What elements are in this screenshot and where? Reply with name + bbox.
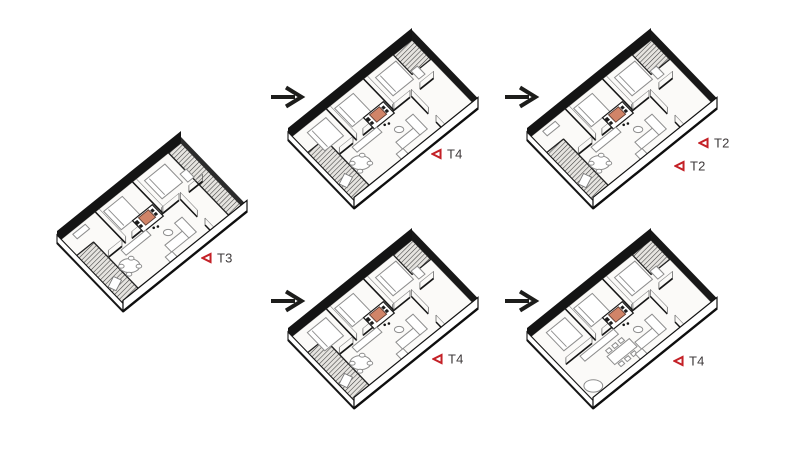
diagram-canvas: T3 T4 T2 T2 T4 T4 [0, 0, 800, 450]
type-label-text: T4 [448, 352, 464, 367]
transform-arrow-icon [503, 288, 541, 314]
type-marker-icon [673, 356, 684, 367]
transform-arrow-icon [269, 84, 307, 110]
type-marker-icon [674, 161, 685, 172]
floorplan-t4-plan-2 [288, 28, 478, 208]
type-marker-icon [698, 138, 709, 149]
floorplans-layer [0, 0, 800, 450]
type-label-text: T4 [689, 354, 705, 369]
floorplan-t4-plan-5 [527, 228, 717, 408]
transform-arrow-icon [269, 288, 307, 314]
type-marker-icon [432, 354, 443, 365]
type-marker-icon [431, 149, 442, 160]
type-label: T4 [431, 147, 463, 162]
type-label-text: T2 [714, 136, 730, 151]
type-label: T2 [698, 136, 730, 151]
type-marker-icon [201, 253, 212, 264]
floorplan-t4-plan-4 [288, 228, 478, 408]
floorplan-t3-plan-1 [57, 131, 247, 311]
type-label: T3 [201, 251, 233, 266]
type-label: T4 [432, 352, 464, 367]
type-label: T2 [674, 159, 706, 174]
type-label-text: T3 [217, 251, 233, 266]
type-label: T4 [673, 354, 705, 369]
floorplan-t2-plan-3 [527, 28, 717, 208]
type-label-text: T4 [447, 147, 463, 162]
transform-arrow-icon [503, 84, 541, 110]
type-label-text: T2 [690, 159, 706, 174]
